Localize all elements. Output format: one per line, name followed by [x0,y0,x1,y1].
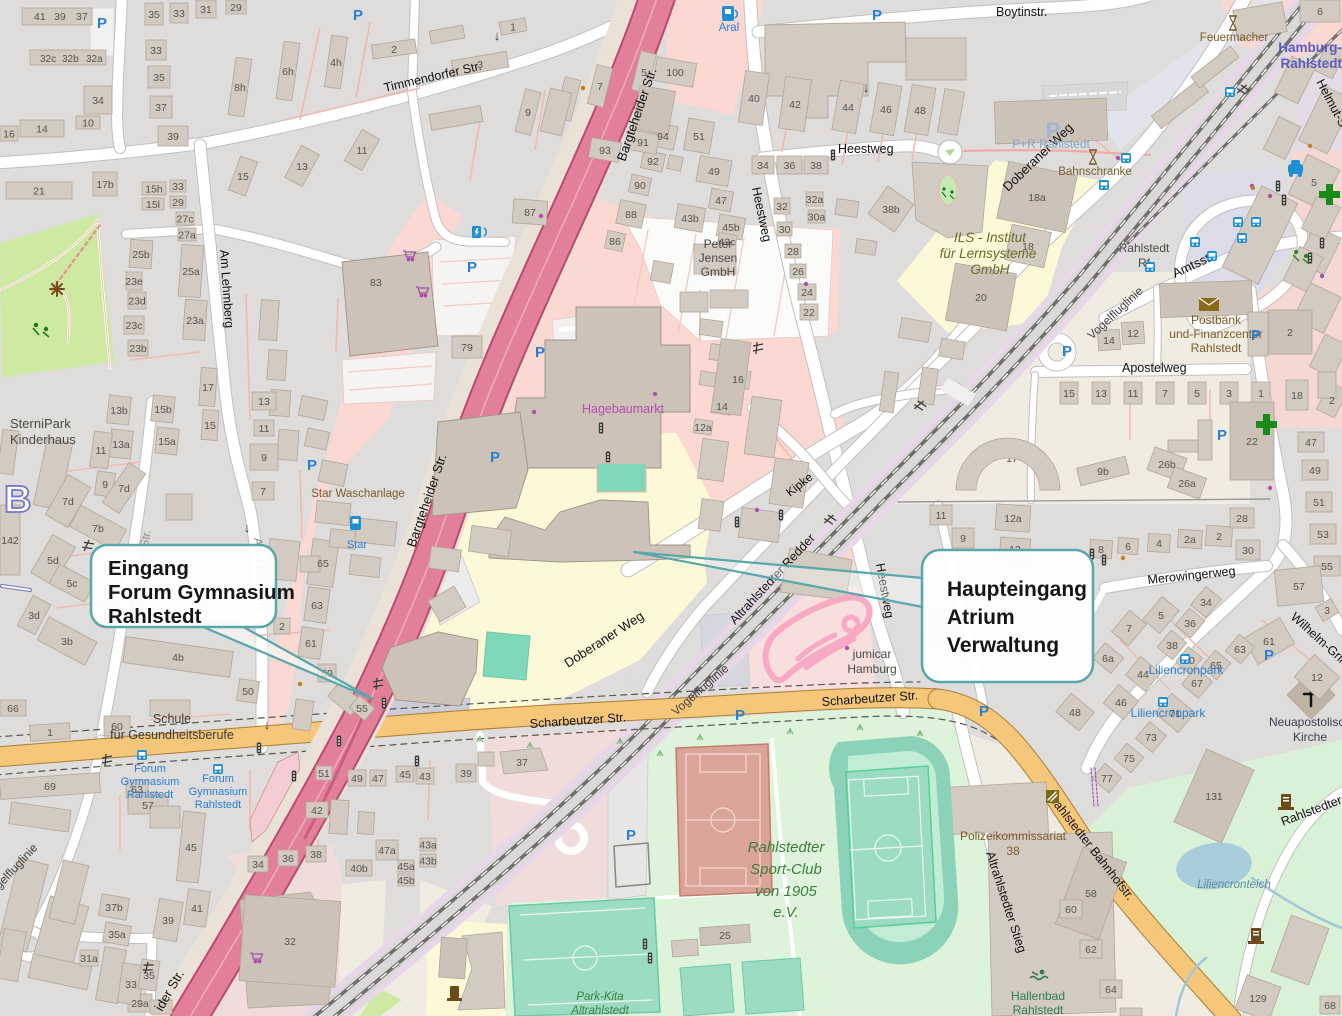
svg-text:Atrium: Atrium [947,606,1015,629]
svg-text:ILS - Institut: ILS - Institut [954,230,1027,245]
svg-text:77: 77 [1101,773,1113,785]
svg-text:Rahlstedt: Rahlstedt [127,789,173,801]
svg-text:73: 73 [1145,732,1157,744]
svg-text:43: 43 [419,771,431,783]
svg-text:27c: 27c [177,214,194,226]
svg-text:37: 37 [516,757,528,769]
svg-text:14: 14 [1103,335,1115,347]
svg-text:34: 34 [757,160,769,172]
svg-text:3: 3 [1226,388,1232,400]
svg-text:5d: 5d [47,555,59,567]
svg-text:9b: 9b [1097,466,1109,478]
svg-text:15: 15 [204,420,216,432]
svg-text:Kinderhaus: Kinderhaus [10,432,76,447]
svg-text:Aral: Aral [719,22,739,34]
svg-text:Star: Star [347,539,368,551]
svg-text:23e: 23e [125,276,143,288]
svg-text:35a: 35a [108,929,126,941]
svg-text:jumicar: jumicar [852,647,892,661]
svg-text:26a: 26a [1178,478,1196,490]
svg-text:53: 53 [1317,529,1329,541]
svg-text:8: 8 [1098,544,1104,556]
svg-text:47: 47 [715,195,727,207]
svg-text:30: 30 [1242,545,1254,557]
svg-text:Rahlstedt: Rahlstedt [1191,341,1242,355]
svg-text:34: 34 [1200,597,1212,609]
svg-text:11: 11 [357,145,368,157]
svg-text:142: 142 [1,535,19,547]
svg-text:37b: 37b [105,902,123,914]
svg-text:7d: 7d [118,483,130,495]
svg-text:Neuapostolisch: Neuapostolisch [1269,715,1342,729]
svg-text:32b: 32b [62,54,79,65]
svg-text:1: 1 [510,22,516,34]
svg-text:38: 38 [310,849,322,861]
svg-text:↓: ↓ [494,28,501,43]
svg-text:30: 30 [779,224,791,236]
svg-text:31a: 31a [80,953,98,965]
svg-text:92: 92 [647,156,659,168]
svg-text:4b: 4b [172,652,184,664]
svg-text:35: 35 [148,9,160,21]
svg-text:32a: 32a [806,194,824,206]
svg-text:129: 129 [1249,993,1267,1005]
svg-text:22: 22 [1246,436,1258,448]
svg-text:7: 7 [260,486,266,498]
svg-text:75: 75 [1123,753,1135,765]
svg-text:15a: 15a [158,436,176,448]
svg-text:42: 42 [311,805,323,817]
svg-text:5c: 5c [66,578,77,590]
svg-text:Hallenbad: Hallenbad [1011,989,1065,1003]
svg-text:39: 39 [162,915,174,927]
svg-text:Rahlstedt: Rahlstedt [108,605,202,628]
svg-text:57: 57 [1293,581,1305,593]
svg-text:33: 33 [150,45,162,57]
svg-text:Park-Kita: Park-Kita [576,991,623,1003]
svg-text:Peter: Peter [704,237,733,251]
svg-text:Hagebaumarkt: Hagebaumarkt [582,402,665,416]
svg-text:Gymnasium: Gymnasium [189,786,248,798]
svg-text:7: 7 [1162,388,1168,400]
svg-text:11: 11 [936,510,947,522]
svg-text:Liliencronpark: Liliencronpark [1149,663,1225,677]
svg-text:32a: 32a [86,54,103,65]
svg-text:9: 9 [960,533,966,545]
svg-text:25: 25 [719,930,731,942]
svg-text:9: 9 [261,452,267,464]
svg-text:63: 63 [311,600,323,612]
svg-text:38: 38 [1006,844,1020,858]
svg-text:33: 33 [173,8,185,20]
svg-text:10: 10 [82,118,94,130]
svg-text:11: 11 [259,423,270,435]
svg-text:13b: 13b [110,405,128,417]
svg-text:28: 28 [1236,513,1248,525]
svg-text:5: 5 [1311,177,1317,189]
svg-text:18: 18 [1291,390,1303,402]
svg-text:GmbH: GmbH [970,262,1009,277]
svg-text:5: 5 [1158,610,1164,622]
svg-text:Forum: Forum [134,763,166,775]
svg-text:49: 49 [708,166,720,178]
svg-text:7d: 7d [62,496,74,508]
svg-text:48: 48 [914,105,926,117]
svg-text:7: 7 [1126,623,1132,635]
svg-text:45a: 45a [397,861,415,873]
svg-text:Liliencronpark: Liliencronpark [1131,706,1207,720]
svg-text:26b: 26b [1158,459,1176,471]
svg-text:60: 60 [1065,904,1077,916]
svg-text:von 1905: von 1905 [755,883,817,900]
svg-text:13: 13 [296,161,308,173]
svg-text:23b: 23b [129,343,147,355]
svg-text:69: 69 [44,781,56,793]
svg-text:65: 65 [317,558,329,570]
svg-text:36: 36 [282,853,294,865]
svg-text:31: 31 [200,4,212,16]
svg-text:Feuermacher: Feuermacher [1200,32,1269,44]
svg-text:P: P [307,457,317,474]
svg-text:Gymnasium: Gymnasium [121,776,180,788]
svg-text:Postbank: Postbank [1191,313,1242,327]
svg-text:41: 41 [34,11,46,23]
svg-text:15: 15 [237,171,249,183]
svg-text:Apostelweg: Apostelweg [1122,361,1187,375]
svg-text:für Lernsysteme: für Lernsysteme [940,246,1037,261]
svg-text:und-Finanzcenter: und-Finanzcenter [1169,327,1262,341]
svg-text:1: 1 [47,727,53,739]
svg-text:34: 34 [92,95,104,107]
svg-text:55: 55 [356,703,368,715]
svg-text:für Gesundheitsberufe: für Gesundheitsberufe [110,728,234,742]
svg-text:Eingang: Eingang [108,557,189,580]
svg-text:↓: ↓ [244,520,251,535]
svg-text:24: 24 [801,287,813,299]
svg-text:32: 32 [776,201,788,213]
svg-text:P: P [467,259,477,276]
svg-text:46: 46 [880,104,892,116]
svg-text:9: 9 [102,479,108,491]
svg-text:43b: 43b [681,213,699,225]
svg-text:35: 35 [153,72,165,84]
svg-text:23d: 23d [128,296,146,308]
svg-text:44: 44 [842,102,854,114]
svg-text:47a: 47a [378,845,396,857]
svg-text:67: 67 [1191,678,1203,690]
svg-text:↓: ↓ [264,717,271,732]
svg-text:41: 41 [191,903,203,915]
svg-text:94: 94 [657,131,669,143]
svg-text:39: 39 [167,131,179,143]
svg-text:46: 46 [1115,697,1127,709]
svg-text:16: 16 [3,129,15,141]
svg-text:28: 28 [787,246,799,258]
svg-text:13: 13 [1095,388,1107,400]
svg-text:Hamburg: Hamburg [847,662,896,676]
svg-text:26: 26 [792,266,804,278]
svg-text:6a: 6a [1102,653,1114,665]
svg-text:5: 5 [1194,388,1200,400]
svg-text:Liliencronteich: Liliencronteich [1197,879,1271,891]
svg-text:3b: 3b [61,636,73,648]
svg-text:30a: 30a [808,212,826,224]
svg-text:P: P [979,703,989,720]
svg-text:6: 6 [1125,541,1131,553]
svg-text:20: 20 [975,292,987,304]
svg-text:68: 68 [1324,1000,1336,1012]
svg-text:Verwaltung: Verwaltung [947,634,1059,657]
svg-text:4: 4 [1156,538,1162,550]
svg-text:6h: 6h [282,66,294,78]
svg-text:14: 14 [36,124,48,136]
svg-text:14: 14 [716,401,728,413]
svg-text:39: 39 [54,11,66,23]
svg-text:83: 83 [370,277,382,289]
svg-text:29: 29 [230,2,242,14]
svg-text:GmbH: GmbH [701,265,736,279]
svg-text:58: 58 [1085,888,1097,900]
svg-text:47: 47 [1305,437,1317,449]
svg-text:e.V.: e.V. [773,904,799,921]
svg-text:11: 11 [1128,388,1139,400]
svg-text:43b: 43b [419,856,437,868]
svg-text:1: 1 [1258,388,1264,400]
svg-text:P: P [1046,118,1061,143]
svg-text:Heestweg: Heestweg [838,142,894,156]
svg-text:↓: ↓ [863,80,870,95]
svg-text:131: 131 [1205,791,1223,803]
svg-text:100: 100 [666,67,684,79]
svg-text:32c: 32c [40,54,56,65]
svg-text:25b: 25b [132,249,150,261]
svg-text:61: 61 [305,638,317,650]
svg-text:7b: 7b [92,523,104,535]
svg-text:45b: 45b [722,222,740,234]
svg-text:12a: 12a [694,422,712,434]
svg-text:P: P [1217,427,1227,444]
svg-text:36: 36 [1184,618,1196,630]
svg-text:93: 93 [599,145,611,157]
svg-text:36: 36 [784,160,796,172]
svg-text:51: 51 [1313,497,1325,509]
svg-text:50: 50 [242,686,254,698]
svg-text:66: 66 [7,703,19,715]
svg-text:86: 86 [609,236,621,248]
svg-text:38b: 38b [882,204,900,216]
svg-text:9: 9 [525,107,531,119]
svg-text:SterniPark: SterniPark [10,416,71,431]
svg-text:11: 11 [96,445,107,457]
svg-text:39: 39 [460,768,472,780]
svg-text:40: 40 [748,93,760,105]
svg-text:33: 33 [172,181,184,193]
svg-text:29a: 29a [131,998,149,1010]
svg-text:8h: 8h [234,82,246,94]
svg-text:2: 2 [391,44,397,56]
svg-text:Haupteingang: Haupteingang [947,578,1087,601]
svg-text:17b: 17b [96,179,114,191]
svg-text:90: 90 [634,180,646,192]
svg-text:Forum: Forum [202,773,234,785]
svg-text:21: 21 [33,186,45,198]
svg-text:47: 47 [372,773,384,785]
svg-text:2a: 2a [1184,534,1196,546]
svg-text:Rahlstedt: Rahlstedt [1013,1003,1064,1016]
svg-text:15: 15 [1063,388,1075,400]
svg-text:Rahlstedter: Rahlstedter [748,839,826,856]
svg-text:49: 49 [1309,465,1321,477]
svg-text:2: 2 [1216,531,1222,543]
svg-text:3d: 3d [28,610,40,622]
svg-text:2: 2 [1329,395,1335,407]
svg-text:Forum Gymnasium: Forum Gymnasium [108,581,295,604]
svg-text:34: 34 [252,859,264,871]
svg-text:12: 12 [1127,328,1139,340]
svg-text:Jensen: Jensen [699,251,738,265]
svg-text:45b: 45b [397,875,415,887]
svg-text:27a: 27a [178,230,196,242]
svg-text:62: 62 [1085,944,1097,956]
svg-text:12a: 12a [1004,513,1022,525]
svg-text:64: 64 [1105,984,1117,996]
svg-text:6: 6 [1317,6,1323,18]
svg-text:88: 88 [625,209,637,221]
svg-text:Kirche: Kirche [1293,730,1327,744]
svg-text:37: 37 [155,102,167,114]
svg-text:7: 7 [597,81,603,93]
svg-text:3: 3 [1324,605,1330,617]
svg-text:Bahnschranke: Bahnschranke [1058,166,1132,178]
svg-text:51: 51 [693,131,705,143]
svg-text:2: 2 [279,621,285,633]
svg-text:42: 42 [789,99,801,111]
svg-text:32: 32 [284,936,296,948]
svg-text:P: P [1264,647,1274,664]
svg-text:Boytinstr.: Boytinstr. [996,5,1047,19]
svg-text:63: 63 [1234,644,1246,656]
svg-text:51: 51 [318,768,330,780]
svg-text:87: 87 [524,207,536,219]
svg-text:15h: 15h [145,184,163,196]
svg-text:P: P [535,344,545,361]
svg-text:79: 79 [461,342,473,354]
svg-text:33: 33 [125,979,137,991]
svg-text:48: 48 [1069,707,1081,719]
svg-text:23a: 23a [186,315,204,327]
svg-text:49: 49 [351,773,363,785]
svg-text:25a: 25a [182,266,200,278]
svg-text:15b: 15b [154,404,172,416]
svg-text:91: 91 [637,137,649,149]
svg-text:45: 45 [399,769,411,781]
svg-text:13a: 13a [112,439,130,451]
svg-text:Star Waschanlage: Star Waschanlage [311,488,405,500]
svg-text:P: P [626,827,636,844]
svg-text:2: 2 [1287,327,1293,339]
svg-text:12: 12 [1311,672,1323,684]
svg-text:4h: 4h [330,57,342,69]
svg-text:37: 37 [76,11,88,23]
svg-text:P: P [1251,327,1261,344]
svg-text:55: 55 [1321,561,1333,573]
svg-text:Hamburg-: Hamburg- [1278,40,1342,55]
svg-text:38: 38 [1166,640,1178,652]
svg-text:P: P [872,7,882,24]
svg-text:17: 17 [202,382,214,394]
svg-text:Schule: Schule [153,712,191,726]
svg-text:Polizeikommissariat: Polizeikommissariat [960,829,1067,843]
svg-text:16: 16 [732,374,744,386]
svg-text:22: 22 [803,307,815,319]
svg-text:B: B [4,479,31,521]
svg-text:18a: 18a [1028,192,1046,204]
svg-text:45: 45 [185,842,197,854]
svg-text:23c: 23c [126,320,143,332]
svg-text:15l: 15l [146,199,160,211]
svg-text:Rahlstedt: Rahlstedt [1280,56,1342,71]
svg-text:Rahlstedt: Rahlstedt [1119,241,1170,255]
svg-text:P: P [97,15,107,32]
svg-text:13: 13 [258,396,270,408]
svg-text:Altrahlstedt: Altrahlstedt [570,1005,629,1016]
svg-text:29: 29 [172,197,184,209]
svg-text:Sport-Club: Sport-Club [750,861,822,878]
svg-text:38: 38 [810,160,822,172]
svg-text:43a: 43a [419,840,437,852]
svg-text:P: P [490,449,500,466]
svg-text:P: P [353,7,363,24]
svg-text:40b: 40b [350,863,368,875]
svg-text:44: 44 [1137,669,1149,681]
svg-text:P: P [1062,343,1072,360]
svg-text:Rahlstedt: Rahlstedt [195,799,241,811]
svg-text:57: 57 [142,800,154,812]
svg-text:P: P [735,707,745,724]
